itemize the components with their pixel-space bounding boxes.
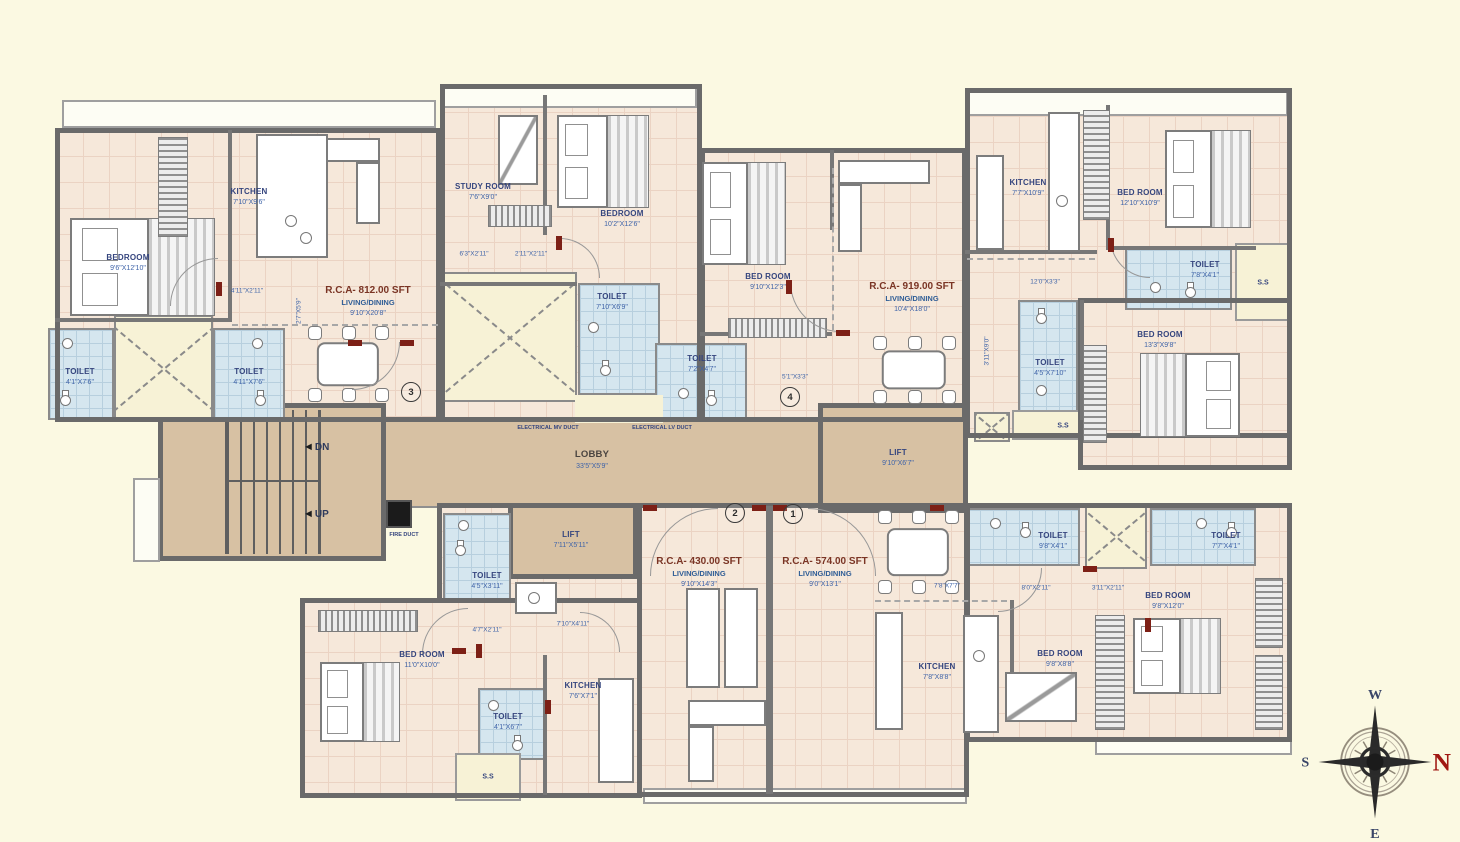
kitchen-counter-icon	[1048, 112, 1080, 252]
fridge-icon	[976, 155, 1004, 250]
shaft-icon	[114, 315, 213, 420]
sink-icon	[990, 518, 1001, 529]
stove-icon	[285, 215, 297, 227]
bed-icon	[320, 662, 400, 742]
toilet-icon	[512, 735, 523, 751]
fire-duct-box	[386, 500, 412, 528]
dim-label: 3'11"X9'0"	[984, 336, 991, 365]
wardrobe-icon	[1083, 110, 1110, 220]
balcony-strip	[443, 86, 697, 108]
wardrobe-icon	[488, 205, 552, 227]
dim-label: 3'11"X2'11"	[1092, 585, 1124, 592]
door-jamb	[400, 340, 414, 346]
floor-plan: BEDROOM 9'6"X12'10" KITCHEN 7'10"X9'6" T…	[0, 0, 1460, 842]
bed-icon	[1140, 353, 1240, 437]
cupboard-icon	[875, 612, 903, 730]
label-kitchen-tl: KITCHEN 7'10"X9'6"	[231, 187, 268, 207]
unit-number-1: 1	[783, 504, 803, 524]
label-study-room: STUDY ROOM 7'6"X9'0"	[455, 182, 511, 202]
label-toilet-bl-b: TOILET 4'1"X6'7"	[493, 712, 523, 732]
label-kitchen-tr: KITCHEN 7'7"X10'9"	[1010, 178, 1047, 198]
toilet-icon	[1185, 282, 1196, 298]
toilet-tr-b	[1018, 300, 1078, 412]
door-jamb	[556, 236, 562, 250]
arrow-left-icon: ◄	[303, 442, 314, 453]
wall	[766, 506, 773, 794]
stair-treads	[225, 410, 321, 554]
stair-up-label: ◄ UP	[303, 509, 329, 520]
label-bedroom-bl: BED ROOM 11'0"X10'0"	[399, 650, 445, 670]
toilet-icon	[255, 390, 266, 406]
single-bed-icon	[1005, 672, 1077, 722]
kitchen-counter-icon	[963, 615, 999, 733]
label-bedroom-br-b: BED ROOM 9'8"X12'0"	[1145, 591, 1191, 611]
dim-label: 6'3"X2'11"	[459, 251, 488, 258]
wardrobe-icon	[1255, 655, 1283, 730]
dim-label: 5'1"X3'3"	[782, 374, 808, 381]
label-lift-small: LIFT 7'11"X5'11"	[554, 530, 589, 550]
dim-label: 2'7"X5'9"	[296, 298, 303, 324]
label-bedroom-u4: BED ROOM 9'10"X12'3"	[745, 272, 791, 292]
label-rca-unit2: R.C.A- 430.00 SFT LIVING/DINING 9'10"X14…	[656, 555, 742, 589]
label-lift-main: LIFT 9'10"X6'7"	[882, 448, 914, 468]
label-rca-unit3: R.C.A- 812.00 SFT LIVING/DINING 9'10"X20…	[325, 284, 411, 318]
compass-rose: W S N E	[1293, 682, 1457, 842]
wall	[55, 318, 230, 322]
door-jamb	[930, 505, 944, 511]
kitchen-counter-icon	[598, 678, 634, 783]
balcony-strip	[1095, 737, 1292, 755]
sink-icon	[62, 338, 73, 349]
stair-midlanding	[225, 480, 321, 482]
label-ss: S.S	[1257, 280, 1268, 287]
sofa-icon	[688, 726, 714, 782]
dim-label: 7'8"X7'7"	[934, 583, 960, 590]
label-kitchen-bl: KITCHEN 7'6"X7'1"	[565, 681, 602, 701]
sink-icon	[252, 338, 263, 349]
compass-north: N	[1433, 748, 1452, 776]
label-electrical-lv-duct: ELECTRICAL LV DUCT	[632, 425, 692, 431]
service-slab	[1012, 410, 1090, 440]
door-jamb	[1145, 618, 1151, 632]
label-bedroom-br-a: BED ROOM 9'8"X8'8"	[1037, 649, 1083, 669]
dim-label: 12'0"X3'3"	[1030, 279, 1060, 286]
wall	[543, 655, 547, 795]
label-lobby: LOBBY 33'5"X5'9"	[575, 449, 609, 471]
compass-south: S	[1301, 755, 1309, 771]
arrow-left-icon: ◄	[303, 509, 314, 520]
door-jamb	[1108, 238, 1114, 252]
stove-icon	[1056, 195, 1068, 207]
sofa-icon	[838, 160, 930, 184]
sink-icon	[678, 388, 689, 399]
door-jamb	[452, 648, 466, 654]
sink-icon	[488, 700, 499, 711]
label-fire-duct: FIRE DUCT	[389, 532, 418, 538]
toilet-icon	[706, 390, 717, 406]
door-jamb	[545, 700, 551, 714]
label-bedroom-tr-a: BED ROOM 12'10"X10'9"	[1117, 188, 1163, 208]
sink-icon	[1036, 385, 1047, 396]
sink-icon	[458, 520, 469, 531]
label-kitchen-br: KITCHEN 7'8"X8'8"	[919, 662, 956, 682]
stove-icon	[973, 650, 985, 662]
label-toilet-tl-a: TOILET 4'1"X7'6"	[65, 367, 95, 387]
single-bed-icon	[498, 115, 538, 185]
stove-icon	[300, 232, 312, 244]
dim-label: 4'7"X2'11"	[472, 627, 501, 634]
bed-icon	[702, 162, 786, 265]
label-toilet-tm-b: TOILET 7'2"X4'7"	[687, 354, 717, 374]
bed-icon	[557, 115, 649, 208]
label-ss: S.S	[482, 774, 493, 781]
door-jamb	[836, 330, 850, 336]
cupboard-icon	[686, 588, 720, 688]
wardrobe-icon	[158, 137, 188, 237]
balcony-strip	[62, 100, 436, 128]
stair-dn-label: ◄ DN	[303, 442, 329, 453]
toilet-icon	[455, 540, 466, 556]
sofa-icon	[838, 184, 862, 252]
wardrobe-icon	[1095, 615, 1125, 730]
dashed-partition	[875, 600, 1007, 602]
toilet-icon	[1036, 308, 1047, 324]
label-electrical-mv-duct: ELECTRICAL MV DUCT	[517, 425, 578, 431]
wardrobe-icon	[1255, 578, 1283, 648]
bed-icon	[1165, 130, 1251, 228]
cupboard-icon	[724, 588, 758, 688]
label-ss: S.S	[1057, 423, 1068, 430]
dining-table-icon	[860, 336, 968, 404]
unit-number-2: 2	[725, 503, 745, 523]
wall	[440, 282, 577, 286]
sofa-icon	[688, 700, 766, 726]
wardrobe-icon	[1083, 345, 1107, 443]
label-toilet-tm-a: TOILET 7'10"X6'9"	[596, 292, 628, 312]
dim-label: 8'0"X2'11"	[1021, 585, 1050, 592]
label-toilet-br-a: TOILET 9'8"X4'1"	[1038, 531, 1068, 551]
lobby-link	[575, 395, 663, 423]
wardrobe-icon	[318, 610, 418, 632]
door-jamb	[476, 644, 482, 658]
door-jamb	[1083, 566, 1097, 572]
label-bedroom-tl: BEDROOM 9'6"X12'10"	[106, 253, 149, 273]
label-toilet-bl-a: TOILET 4'5"X3'11"	[471, 571, 502, 591]
label-toilet-tl-b: TOILET 4'11"X7'6"	[233, 367, 264, 387]
dim-label: 4'11"X2'11"	[231, 288, 263, 295]
stove-icon	[528, 592, 540, 604]
shaft-icon	[443, 272, 577, 402]
label-toilet-tr-b: TOILET 4'5"X7'10"	[1034, 358, 1066, 378]
sofa-icon	[356, 162, 380, 224]
sink-icon	[588, 322, 599, 333]
compass-west: W	[1368, 687, 1382, 703]
toilet-icon	[1020, 522, 1031, 538]
dim-label: 2'11"X2'11"	[515, 251, 547, 258]
balcony-strip	[133, 478, 160, 562]
dim-label: 7'10"X4'11"	[557, 621, 590, 628]
dashed-partition	[967, 258, 1095, 260]
door-jamb	[643, 505, 657, 511]
label-toilet-br-b: TOILET 7'7"X4'1"	[1211, 531, 1241, 551]
compass-east: E	[1370, 826, 1379, 842]
sink-icon	[1150, 282, 1161, 293]
label-rca-unit4: R.C.A- 919.00 SFT LIVING/DINING 10'4"X18…	[869, 280, 955, 314]
balcony-strip	[968, 90, 1288, 116]
balcony-strip	[643, 788, 967, 804]
label-bedroom-tm: BEDROOM 10'2"X12'6"	[600, 209, 643, 229]
shaft-icon	[974, 412, 1010, 442]
sink-icon	[1196, 518, 1207, 529]
unit-number-3: 3	[401, 382, 421, 402]
label-toilet-tr-a: TOILET 7'8"X4'1"	[1190, 260, 1220, 280]
door-jamb	[752, 505, 766, 511]
shaft-icon	[1085, 503, 1147, 569]
label-rca-unit1: R.C.A- 574.00 SFT LIVING/DINING 9'0"X13'…	[782, 555, 868, 589]
dining-table-icon	[866, 510, 970, 594]
unit-number-4: 4	[780, 387, 800, 407]
door-jamb	[348, 340, 362, 346]
label-bedroom-tr-b: BED ROOM 13'3"X9'8"	[1137, 330, 1183, 350]
door-jamb	[216, 282, 222, 296]
toilet-icon	[60, 390, 71, 406]
toilet-icon	[600, 360, 611, 376]
